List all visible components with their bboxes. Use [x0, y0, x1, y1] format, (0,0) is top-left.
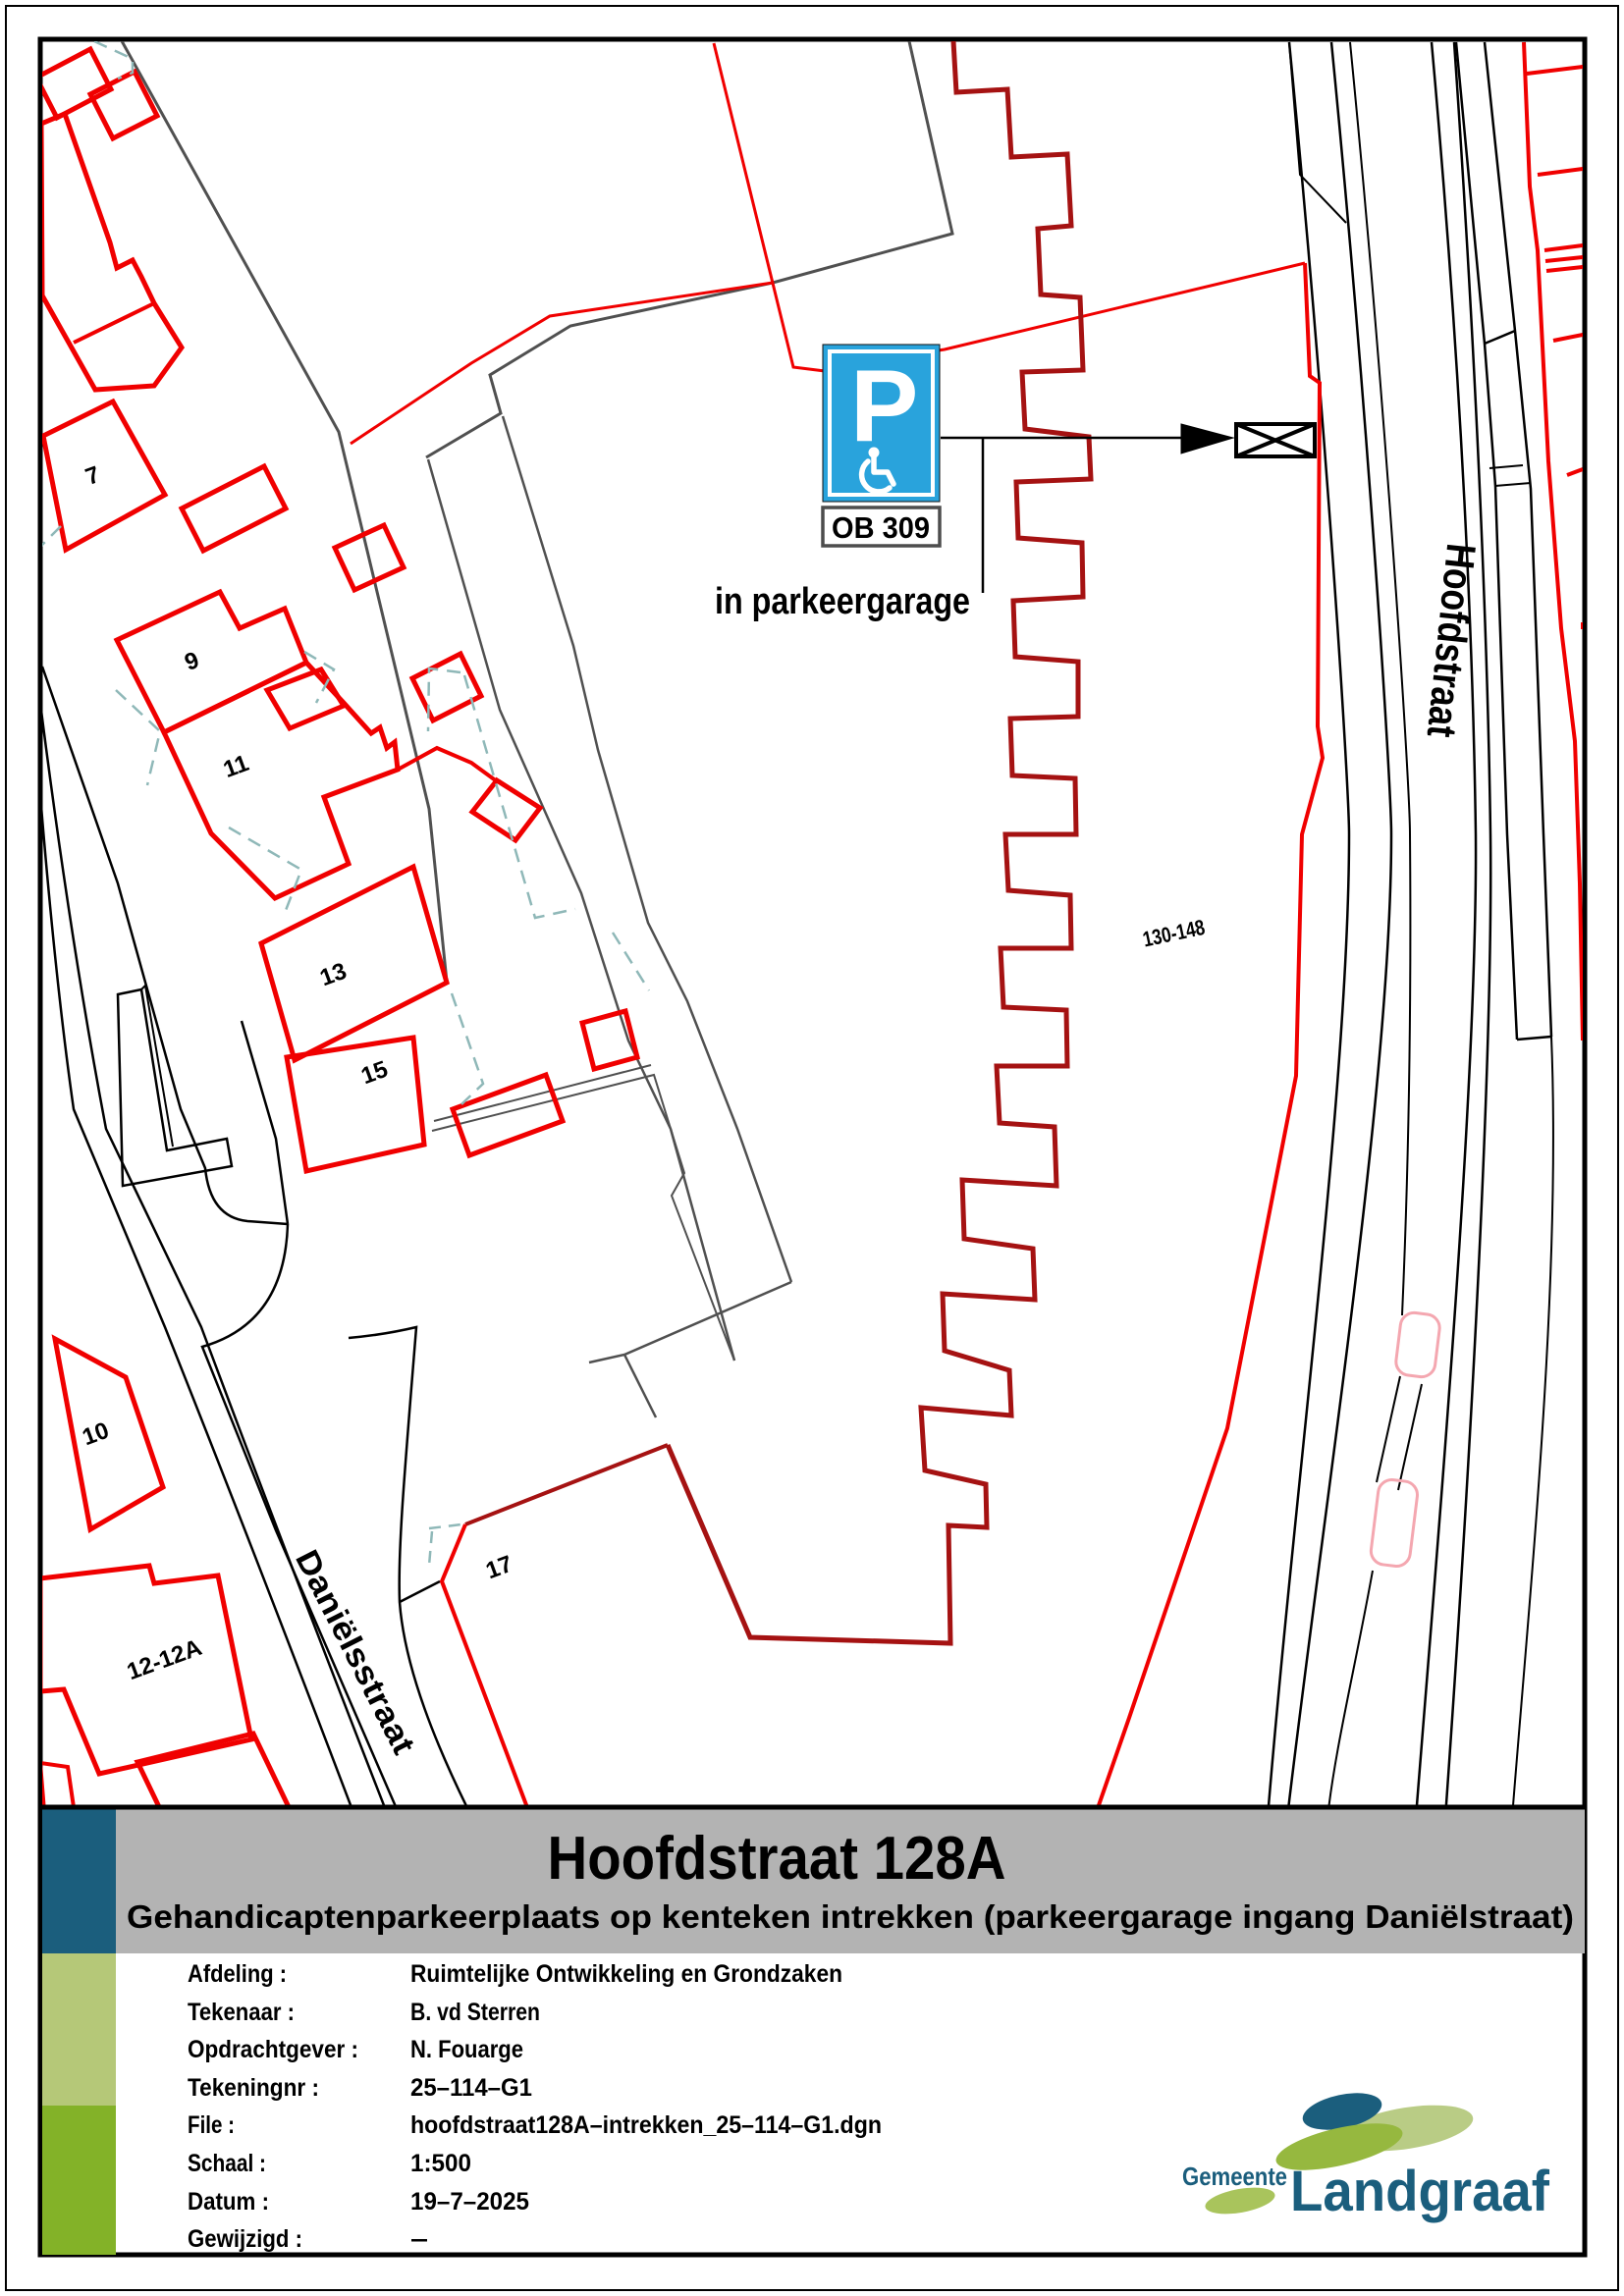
svg-text:Gehandicaptenparkeerplaats op: Gehandicaptenparkeerplaats op kenteken i…	[127, 1898, 1574, 1935]
svg-text:1:500: 1:500	[410, 2150, 471, 2177]
svg-text:Gemeente: Gemeente	[1182, 2162, 1287, 2191]
svg-text:hoofdstraat128A–intrekken_25–1: hoofdstraat128A–intrekken_25–114–G1.dgn	[410, 2111, 882, 2139]
svg-text:Afdeling :: Afdeling :	[188, 1960, 287, 1988]
svg-text:Landgraaf: Landgraaf	[1290, 2160, 1550, 2223]
svg-text:Gewijzigd :: Gewijzigd :	[188, 2225, 302, 2253]
svg-text:19–7–2025: 19–7–2025	[410, 2188, 529, 2216]
svg-text:–: –	[410, 2225, 428, 2253]
svg-text:Hoofdstraat 128A: Hoofdstraat 128A	[548, 1825, 1006, 1893]
svg-text:B. vd Sterren: B. vd Sterren	[410, 1999, 540, 2026]
svg-text:OB 309: OB 309	[832, 510, 930, 545]
svg-text:Ruimtelijke Ontwikkeling en Gr: Ruimtelijke Ontwikkeling en Grondzaken	[410, 1960, 842, 1988]
svg-text:25–114–G1: 25–114–G1	[410, 2074, 532, 2102]
svg-text:Tekeningnr :: Tekeningnr :	[188, 2074, 319, 2102]
svg-text:in parkeergarage: in parkeergarage	[715, 581, 970, 622]
svg-text:Tekenaar :: Tekenaar :	[188, 1999, 295, 2026]
svg-text:Datum :: Datum :	[188, 2188, 269, 2216]
svg-text:File :: File :	[188, 2111, 235, 2139]
svg-text:N. Fouarge: N. Fouarge	[410, 2036, 523, 2063]
svg-text:Opdrachtgever :: Opdrachtgever :	[188, 2036, 358, 2063]
svg-text:Schaal :: Schaal :	[188, 2150, 266, 2177]
svg-text:P: P	[850, 349, 918, 463]
